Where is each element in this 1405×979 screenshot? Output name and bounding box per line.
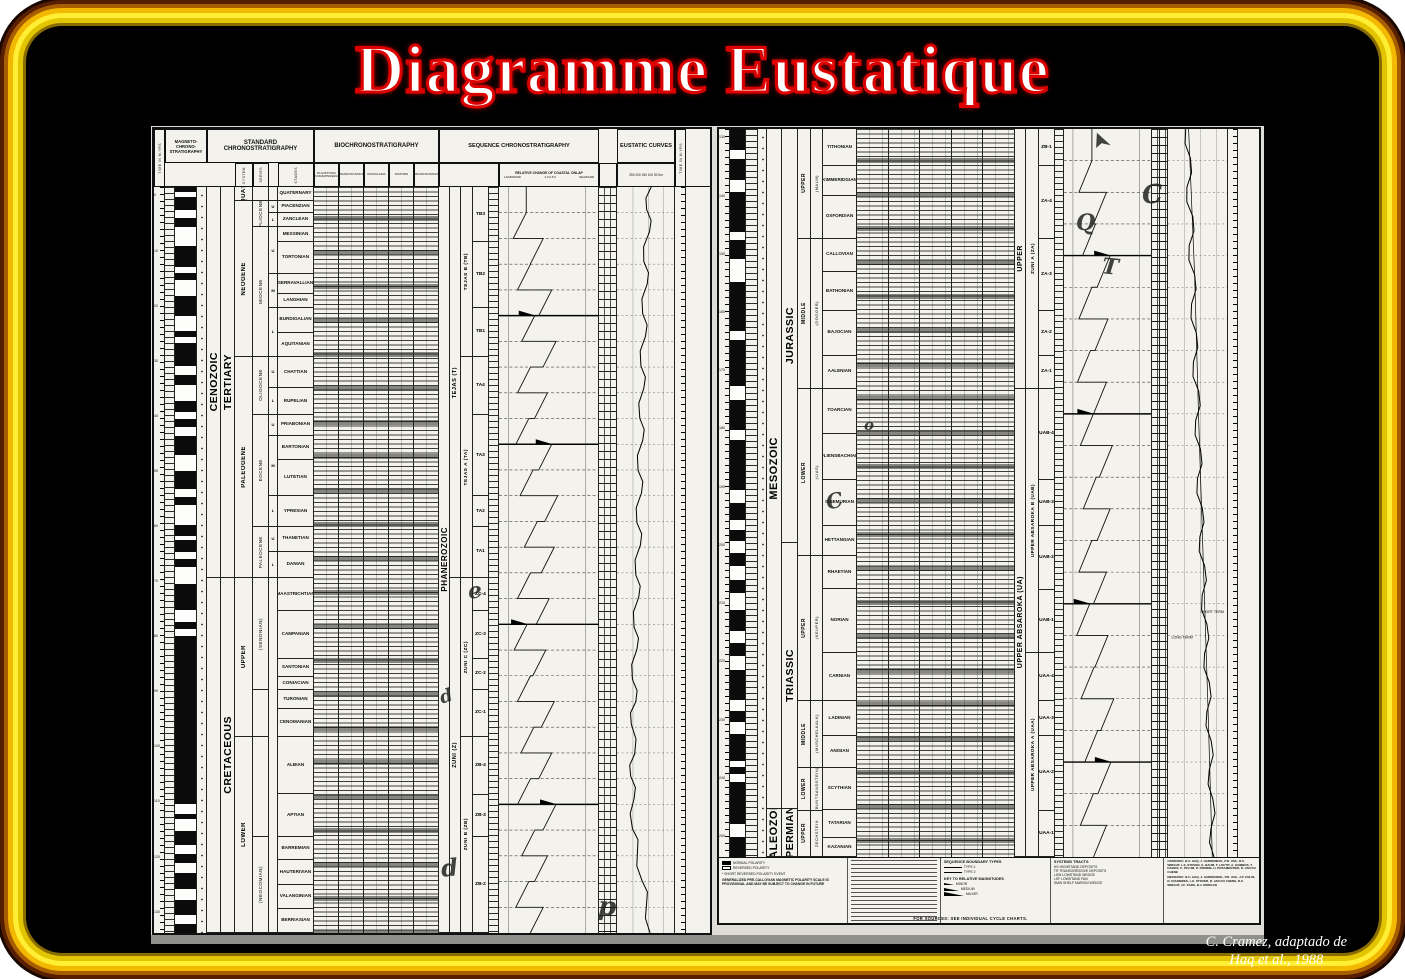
group-label: UPPER ABSAROKA B (UAB) <box>1030 484 1035 557</box>
stage-cell: TURONIAN <box>278 690 313 709</box>
group-cell: (BUNTSANDSTEIN) <box>811 768 822 811</box>
stage-cell: SANTONIAN <box>278 659 313 678</box>
stage-cell: AQUITANIAN <box>278 333 313 357</box>
group-cell: LOWER <box>798 389 810 556</box>
time-number: 210 <box>719 602 725 606</box>
polarity-stripe <box>175 559 196 567</box>
group-cell: UAB-3 <box>1039 480 1054 526</box>
group-label: QUAT. <box>241 187 247 201</box>
stage-cell: CALLOVIAN <box>823 239 856 272</box>
group-cell: TA1 <box>473 527 488 579</box>
stage-label: SCYTHIAN <box>827 786 852 791</box>
polarity-stripe <box>175 419 196 427</box>
polarity-stripe <box>175 288 196 297</box>
polarity-stripe <box>730 767 745 774</box>
bio-column-header: RADIOLARIA <box>364 163 389 187</box>
stage-label: MESSINIAN <box>282 232 310 237</box>
polarity-stripe <box>730 331 745 340</box>
polarity-stripe <box>730 656 745 670</box>
polarity-stripe <box>730 553 745 566</box>
polarity-stripe <box>730 421 745 430</box>
polarity-stripe <box>175 375 196 385</box>
col-t2 <box>675 187 686 933</box>
polarity-stripe <box>175 854 196 863</box>
polarity-stripe <box>730 566 745 580</box>
group-cell: PERMIAN <box>782 809 797 857</box>
polarity-stripe <box>175 873 196 884</box>
stage-label: LADINIAN <box>828 716 852 721</box>
legend-row: REVERSED POLARITY <box>722 866 844 870</box>
polarity-stripe <box>175 350 196 358</box>
group-cell: ZECHSTEIN <box>811 811 822 857</box>
stage-cell: PLIENSBACHIAN <box>823 434 856 480</box>
polarity-note: GENERALIZED PRE-CALLOVIAN MAGNETIC POLAR… <box>722 878 844 886</box>
header-label: BIOCHRONOSTRATIGRAPHY <box>333 143 419 149</box>
stage-label: AQUITANIAN <box>280 342 311 347</box>
group-label: L <box>272 508 274 513</box>
group-label: JURASSIC <box>784 307 796 364</box>
stage-cell: BERRIASIAN <box>278 909 313 933</box>
stage-label: THANETIAN <box>281 536 310 541</box>
group-label: TEJAS A (TA) <box>464 449 469 485</box>
polarity-stripe <box>175 645 196 654</box>
stage-label: OXFORDIAN <box>825 214 855 219</box>
group-label: ZB-1 <box>1041 145 1052 150</box>
bio-column-header: NANNOFOSSILS <box>339 163 364 187</box>
stage-label: KIMMERIDGIAN <box>823 178 856 183</box>
stage-label: TITHONIAN <box>826 145 853 150</box>
stage-cell: CHATTIAN <box>278 357 313 388</box>
group-label: ZB-3 <box>475 813 486 818</box>
group-label: ZC-3 <box>475 632 486 637</box>
group-cell: (MALM) <box>811 129 822 239</box>
col-bar <box>175 187 197 933</box>
polarity-stripe <box>175 784 196 793</box>
legend-label: MINOR <box>956 882 967 886</box>
svg-text:SHORT TERM: SHORT TERM <box>1200 610 1224 614</box>
col-cyc <box>1055 129 1064 857</box>
time-ticks-right <box>1233 129 1237 857</box>
group-label: U <box>272 248 275 253</box>
slide-title: Diagramme Eustatique <box>0 30 1405 109</box>
group-cell: ZUNI A (ZA) <box>1026 129 1038 389</box>
group-label: L <box>272 562 274 567</box>
col-cyc <box>489 187 499 933</box>
polarity-stripe <box>175 761 196 768</box>
time-number: 60 <box>154 525 158 529</box>
group-label: UAB-1 <box>1039 618 1054 623</box>
polarity-stripe <box>730 676 745 683</box>
group-cell: UAA-3 <box>1039 701 1054 736</box>
legend-band: NORMAL POLARITYREVERSED POLARITY* SHORT … <box>719 857 1259 923</box>
biozone-column <box>920 129 952 857</box>
group-label: UAB-3 <box>1039 500 1054 505</box>
systems-tracts-legend: SYSTEMS TRACTSHS HIGHSTAND DEPOSITSTR TR… <box>1051 858 1164 923</box>
polarity-stripe <box>730 413 745 421</box>
polarity-stripe <box>175 482 196 489</box>
polarity-stripe <box>730 463 745 476</box>
header-label: SYSTEM <box>241 167 247 184</box>
group-label: TEJAS (T) <box>452 367 458 398</box>
header-label: MAGNETO-CHRONO-STRATIGRAPHY <box>166 139 206 154</box>
header-box: SYSTEM <box>235 163 253 187</box>
credit-line-1: C. Cramez, adaptado de <box>1206 933 1347 951</box>
bio-column-header: DIATOMS <box>389 163 414 187</box>
biozone-column <box>389 187 414 933</box>
magnitude-wedge <box>944 888 959 891</box>
group-cell: ZA-4 <box>1039 166 1054 238</box>
group-label: UPPER <box>1017 245 1024 272</box>
group-cell: TA2 <box>473 496 488 526</box>
group-cell: TEJAS (T) <box>450 187 460 578</box>
credit-line-2: Haq et al., 1988 <box>1206 951 1347 969</box>
group-label: TEJAS B (TB) <box>464 253 469 290</box>
stage-cell: PRIABONIAN <box>278 415 313 436</box>
stage-label: CAMPANIAN <box>281 632 311 637</box>
group-cell: ZB-2 <box>473 837 488 933</box>
stage-label: SANTONIAN <box>281 665 310 670</box>
group-label: U <box>272 204 275 209</box>
stage-label: NORIAN <box>829 618 849 623</box>
polarity-stripe <box>730 205 745 219</box>
group-cell: PALEOGENE <box>235 357 252 578</box>
polarity-stripe <box>730 782 745 791</box>
stage-cell: PIACENZIAN <box>278 201 313 214</box>
time-ticks <box>725 129 729 857</box>
legend-row: MEDIUM <box>944 887 1047 891</box>
group-cell: JURASSIC <box>782 129 797 543</box>
group-cell: U <box>269 415 277 436</box>
stage-cell: RUPELIAN <box>278 388 313 414</box>
polarity-stripe <box>730 192 745 205</box>
time-number: 150 <box>719 253 725 257</box>
header-label: STANDARD CHRONOSTRATIGRAPHY <box>208 140 313 152</box>
time-number: 100 <box>154 745 160 749</box>
group-cell: CENOZOIC <box>207 187 220 578</box>
stage-label: ALBIAN <box>286 763 305 768</box>
scrawl-mark: Q <box>1076 212 1095 234</box>
stage-label: ZANCLEAN <box>282 217 309 222</box>
polarity-stripe <box>175 838 196 846</box>
stage-label: YPRESIAN <box>283 509 309 514</box>
left-panel-body: 0102030405060708090100110120130CENOZOICT… <box>154 187 710 933</box>
group-cell: PALEOZOIC <box>767 809 781 857</box>
right-panel-body: 130140150160170180190200210220230240250M… <box>719 129 1259 857</box>
polarity-stripe <box>730 180 745 192</box>
bio-column-label: PLANKTONIC FORAMINIFERA <box>315 172 338 178</box>
stage-label: CENOMANIAN <box>279 720 313 725</box>
polarity-stripe <box>730 451 745 463</box>
time-number: 120 <box>154 856 160 860</box>
group-label: TA2 <box>476 509 485 514</box>
group-label: (MALM) <box>814 175 819 192</box>
polarity-stripe <box>730 503 745 511</box>
polarity-stripe <box>175 296 196 305</box>
stage-label: BURDIGALIAN <box>278 317 312 322</box>
stage-label: PIACENZIAN <box>280 204 310 209</box>
scan-edge-bar <box>151 935 1264 944</box>
polarity-stripe <box>175 497 196 506</box>
time-number: 190 <box>719 486 725 490</box>
polarity-stripe <box>730 812 745 824</box>
group-label: UPPER ABSAROKA (UA) <box>1017 576 1024 668</box>
polarity-stripe <box>730 631 745 643</box>
group-label: UPPER <box>801 823 807 843</box>
group-cell: TA4 <box>473 357 488 415</box>
col-m2: ZUNI A (ZA)UPPER ABSAROKA B (UAB)UPPER A… <box>1026 129 1039 857</box>
stage-label: PRIABONIAN <box>280 422 311 427</box>
scrawl-mark: d <box>440 855 459 880</box>
polarity-stripe <box>175 863 196 873</box>
polarity-swatch <box>722 866 731 870</box>
col-onlap <box>1064 129 1152 857</box>
biozone-column <box>952 129 984 857</box>
group-cell: (SENONIAN) <box>253 578 268 690</box>
polarity-stripe <box>175 412 196 419</box>
group-cell: TB3 <box>473 187 488 242</box>
stage-cell: HAUTERIVIAN <box>278 860 313 885</box>
polarity-stripe <box>730 541 745 553</box>
header-box: TIME IN M.YRS <box>675 129 686 187</box>
group-label: U <box>272 536 275 541</box>
stage-label: PLIENSBACHIAN <box>823 454 856 459</box>
polarity-stripe <box>175 343 196 350</box>
polarity-stripe <box>730 801 745 812</box>
group-cell: ZB-3 <box>473 795 488 838</box>
group-label: ZUNI B (ZB) <box>464 818 469 850</box>
polarity-stripe <box>175 246 196 257</box>
stage-label: CARNIAN <box>828 674 851 679</box>
legend-label: REVERSED POLARITY <box>733 866 769 870</box>
col-ser: QUAT.NEOGENEPALEOGENEUPPERLOWER <box>235 187 253 933</box>
group-cell: (MUSCHELKALK) <box>811 701 822 768</box>
group-label: MIDDLE <box>801 302 807 324</box>
group-cell: (DOGGER) <box>811 239 822 389</box>
stage-label: SERRAVALLIAN <box>278 281 313 286</box>
credits-cenozoic: CENOZOIC: B.U. HAQ, J. HARDENBOL, P.R. V… <box>1167 860 1256 874</box>
stage-label: LUTETIAN <box>283 475 308 480</box>
polarity-stripe <box>730 511 745 520</box>
group-label: TA1 <box>476 549 485 554</box>
group-label: ZB-2 <box>475 882 486 887</box>
col-ticks: 130140150160170180190200210220230240250 <box>719 129 730 857</box>
polarity-stripe <box>730 683 745 691</box>
polarity-swatch <box>722 861 731 865</box>
stage-label: HAUTERIVIAN <box>279 870 312 875</box>
group-label: MESOZOIC <box>768 437 780 500</box>
group-label: PHANEROZOIC <box>440 527 449 592</box>
time-number: 80 <box>154 635 158 639</box>
group-cell: ZA-3 <box>1039 239 1054 311</box>
col-sub: (MALM)(DOGGER)(LIAS)(KEUPER)(MUSCHELKALK… <box>811 129 823 857</box>
polarity-stripe <box>175 654 196 664</box>
legend-label: NORMAL POLARITY <box>733 861 765 865</box>
col-pmk <box>758 129 767 857</box>
polarity-stripe <box>730 406 745 413</box>
group-cell: UAA-2 <box>1039 736 1054 810</box>
group-cell: EOCENE <box>253 415 268 527</box>
stage-label: BERRIASIAN <box>280 918 311 923</box>
group-label: PALEOZOIC <box>768 809 780 857</box>
polarity-stripe <box>730 747 745 761</box>
polarity-stripe <box>730 361 745 373</box>
stage-cell: KIMMERIDGIAN <box>823 166 856 196</box>
polarity-stripe <box>730 620 745 631</box>
polarity-stripe <box>175 366 196 375</box>
header-box: 250 200 150 100 50 0m <box>617 163 675 187</box>
group-cell: U <box>269 201 277 214</box>
polarity-stripe <box>730 586 745 593</box>
bio-column-header: PLANKTONIC FORAMINIFERA <box>314 163 339 187</box>
group-label: U <box>272 422 275 427</box>
group-label: LOWER <box>801 462 807 483</box>
group-label: (MUSCHELKALK) <box>814 714 819 753</box>
polarity-stripe <box>730 837 745 851</box>
polarity-stripe <box>730 150 745 159</box>
group-label: UPPER <box>801 173 807 193</box>
group-label: ZECHSTEIN <box>814 820 819 847</box>
time-number: 130 <box>719 136 725 140</box>
group-cell: UPPER <box>798 129 810 239</box>
polarity-stripe <box>175 664 196 675</box>
group-cell: PLIOCENE <box>253 201 268 227</box>
polarity-stripe <box>730 282 745 295</box>
legend-row: MINOR <box>944 882 1047 886</box>
group-cell <box>269 578 277 933</box>
stage-cell: NORIAN <box>823 589 856 652</box>
polarity-stripe <box>175 505 196 514</box>
bio-column-label: RADIOLARIA <box>367 173 385 176</box>
polarity-stripe <box>175 804 196 815</box>
polarity-stripe <box>730 142 745 150</box>
stage-cell: CARNIAN <box>823 653 856 701</box>
group-cell: NEOGENE <box>235 201 252 357</box>
polarity-stripe <box>730 373 745 386</box>
bio-column-label: NANNOFOSSILS <box>340 173 364 176</box>
group-label: ZUNI A (ZA) <box>1030 243 1035 274</box>
group-cell: UPPER ABSAROKA B (UAB) <box>1026 389 1038 653</box>
stage-cell: TORTONIAN <box>278 242 313 273</box>
group-cell: TB2 <box>473 242 488 307</box>
time-number: 160 <box>719 311 725 315</box>
group-cell <box>253 187 268 201</box>
group-label: TB3 <box>476 212 485 217</box>
group-cell: MIDDLE <box>798 239 810 389</box>
group-label: PERMIAN <box>784 809 796 857</box>
polarity-stripe <box>175 316 196 327</box>
curve-canvas <box>617 187 674 933</box>
stage-label: TATARIAN <box>827 821 851 826</box>
group-label: MIDDLE <box>801 723 807 745</box>
stage-cell: TITHONIAN <box>823 129 856 166</box>
polarity-stripe <box>175 357 196 366</box>
group-cell: L <box>269 388 277 414</box>
scrawl-mark: o <box>864 418 874 433</box>
col-eu: LONG TERMSHORT TERM <box>1168 129 1228 857</box>
group-cell <box>253 737 268 838</box>
polarity-stripe <box>175 575 196 584</box>
stage-label: CONIACIAN <box>281 681 309 686</box>
group-label: ZA-3 <box>1041 272 1052 277</box>
stage-cell: LADINIAN <box>823 701 856 736</box>
polarity-stripe <box>175 698 196 706</box>
group-cell: MESOZOIC <box>767 129 781 809</box>
bio-column-label: MACROFOSSILS <box>415 173 439 176</box>
bio-column-label: DIATOMS <box>395 173 408 176</box>
col-era: MESOZOICPALEOZOIC <box>767 129 782 857</box>
col-m2: TEJAS (T)ZUNI (Z) <box>450 187 461 933</box>
polarity-stripe <box>175 594 196 605</box>
stage-cell: BATHONIAN <box>823 272 856 311</box>
time-number: 50 <box>154 470 158 474</box>
polarity-stripe <box>730 323 745 331</box>
magnitude-wedge <box>944 883 954 885</box>
group-label: CRETACEOUS <box>222 716 234 794</box>
header-box: SEQUENCE CHRONOSTRATIGRAPHY <box>439 129 599 163</box>
time-number: 230 <box>719 719 725 723</box>
col-stg: QUATERNARYPIACENZIANZANCLEANMESSINIANTOR… <box>278 187 314 933</box>
group-cell: MIDDLE <box>798 701 810 768</box>
legend-label: MAJOR <box>966 892 978 896</box>
col-era: CENOZOIC <box>207 187 221 933</box>
col-onlap <box>499 187 599 933</box>
group-cell: ZB-4 <box>473 737 488 795</box>
jurassic-triassic-panel: 130140150160170180190200210220230240250M… <box>717 127 1261 925</box>
polarity-legend: NORMAL POLARITYREVERSED POLARITY* SHORT … <box>719 858 848 923</box>
stage-cell: ALBIAN <box>278 737 313 795</box>
time-number: 70 <box>154 580 158 584</box>
polarity-stripe <box>730 340 745 350</box>
group-cell: UPPER <box>235 578 252 737</box>
polarity-stripe <box>730 159 745 169</box>
group-cell: L <box>269 308 277 357</box>
group-label: OLIGOCENE <box>258 369 263 401</box>
col-mlab <box>165 187 175 933</box>
group-label: ZB-4 <box>475 763 486 768</box>
credits-block: CENOZOIC: B.U. HAQ, J. HARDENBOL, P.R. V… <box>1164 858 1259 923</box>
header-label: EUSTATIC CURVES <box>619 143 673 149</box>
legend-row: TYPE 2 <box>944 870 1047 874</box>
polarity-stripe <box>175 924 196 933</box>
group-cell: TB1 <box>473 308 488 357</box>
polarity-stripe <box>730 530 745 541</box>
scrawl-mark: p <box>597 893 617 920</box>
stage-cell: THANETIAN <box>278 527 313 552</box>
legend-label: MEDIUM <box>961 887 975 891</box>
polarity-stripe <box>730 430 745 440</box>
header-box <box>599 163 617 187</box>
tract-item: SMW SHELF MARGIN WEDGE <box>1054 881 1160 885</box>
polarity-stripe <box>175 636 196 645</box>
stage-label: APTIAN <box>286 813 305 818</box>
polarity-stripe <box>175 915 196 924</box>
group-cell: (LIAS) <box>811 389 822 556</box>
polarity-event: * SHORT REVERSED POLARITY EVENT <box>722 872 844 876</box>
polarity-stripe <box>175 515 196 525</box>
col-ticks: 0102030405060708090100110120130 <box>154 187 165 933</box>
sources-noise-block <box>848 858 941 923</box>
header-label: TIME IN M.YRS <box>157 143 163 174</box>
group-cell: L <box>269 496 277 526</box>
group-label: TA3 <box>476 453 485 458</box>
group-cell: PALEOCENE <box>253 527 268 579</box>
header-box: TIME IN M.YRS <box>154 129 165 187</box>
stage-cell: DANIAN <box>278 552 313 578</box>
magnitude-wedge <box>944 892 964 896</box>
polarity-stripe <box>175 306 196 316</box>
polarity-stripe <box>730 476 745 490</box>
time-number: 90 <box>154 690 158 694</box>
